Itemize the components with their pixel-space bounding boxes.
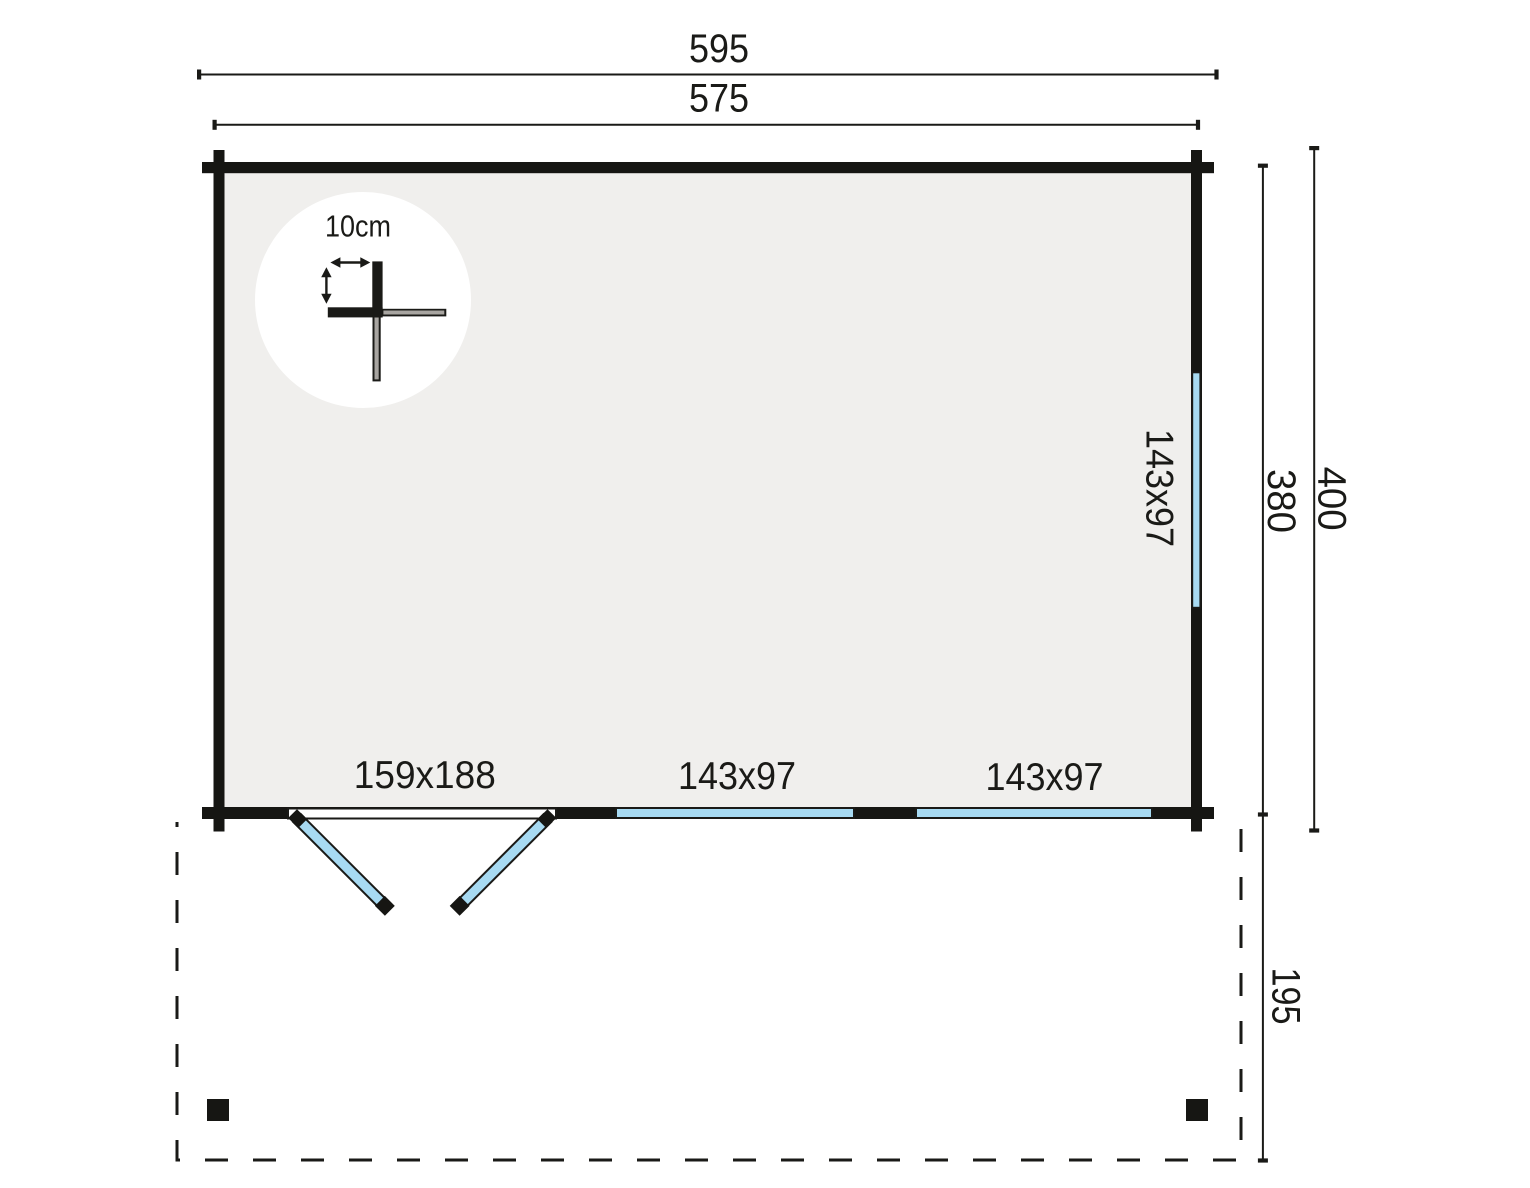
svg-text:143x97: 143x97	[986, 756, 1104, 799]
svg-text:400: 400	[1310, 467, 1354, 531]
svg-text:195: 195	[1264, 968, 1308, 1025]
svg-text:159x188: 159x188	[354, 754, 496, 797]
svg-text:143x97: 143x97	[678, 755, 796, 798]
svg-text:380: 380	[1259, 469, 1303, 533]
svg-text:143x97: 143x97	[1138, 429, 1181, 547]
svg-text:595: 595	[689, 27, 749, 71]
svg-text:10cm: 10cm	[325, 209, 391, 244]
svg-text:575: 575	[689, 77, 749, 121]
